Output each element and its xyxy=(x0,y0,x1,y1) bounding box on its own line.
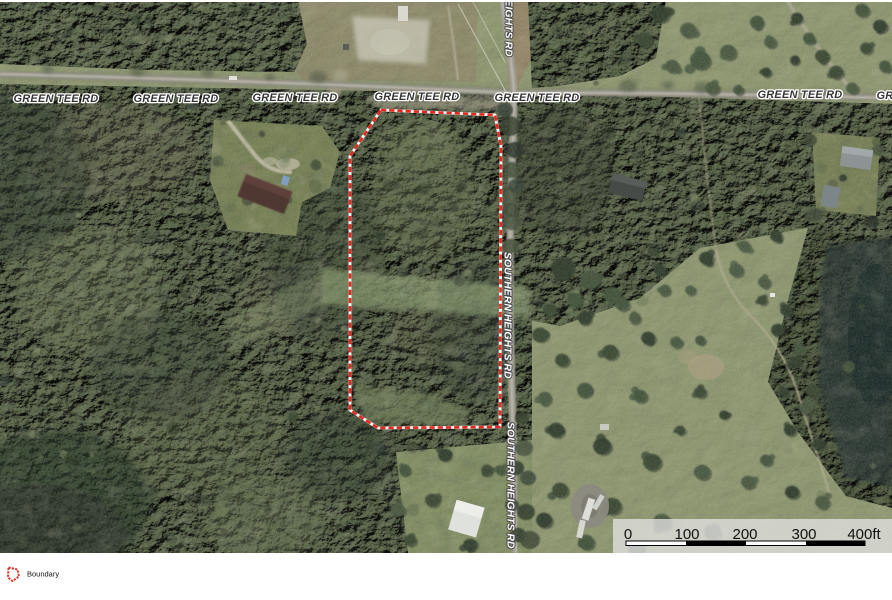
svg-text:GREEN TEE RD: GREEN TEE RD xyxy=(14,93,99,105)
svg-text:GREEN TEE RD: GREEN TEE RD xyxy=(877,90,892,102)
svg-text:SOUTHERN HEIGHTS RD: SOUTHERN HEIGHTS RD xyxy=(505,422,517,549)
svg-text:300: 300 xyxy=(791,526,816,543)
svg-text:GREEN TEE RD: GREEN TEE RD xyxy=(495,92,580,104)
svg-text:200: 200 xyxy=(732,526,757,543)
svg-text:GREEN TEE RD: GREEN TEE RD xyxy=(375,91,460,103)
svg-text:SOUTHERN HEIGHTS RD: SOUTHERN HEIGHTS RD xyxy=(503,0,515,57)
svg-text:Boundary: Boundary xyxy=(27,570,59,579)
svg-text:GREEN TEE RD: GREEN TEE RD xyxy=(758,89,843,101)
svg-text:GREEN TEE RD: GREEN TEE RD xyxy=(253,92,338,104)
svg-text:0: 0 xyxy=(624,526,632,543)
svg-text:100: 100 xyxy=(674,526,699,543)
svg-text:GREEN TEE RD: GREEN TEE RD xyxy=(134,93,219,105)
svg-text:400ft: 400ft xyxy=(847,526,881,543)
svg-text:SOUTHERN HEIGHTS RD: SOUTHERN HEIGHTS RD xyxy=(502,252,514,379)
